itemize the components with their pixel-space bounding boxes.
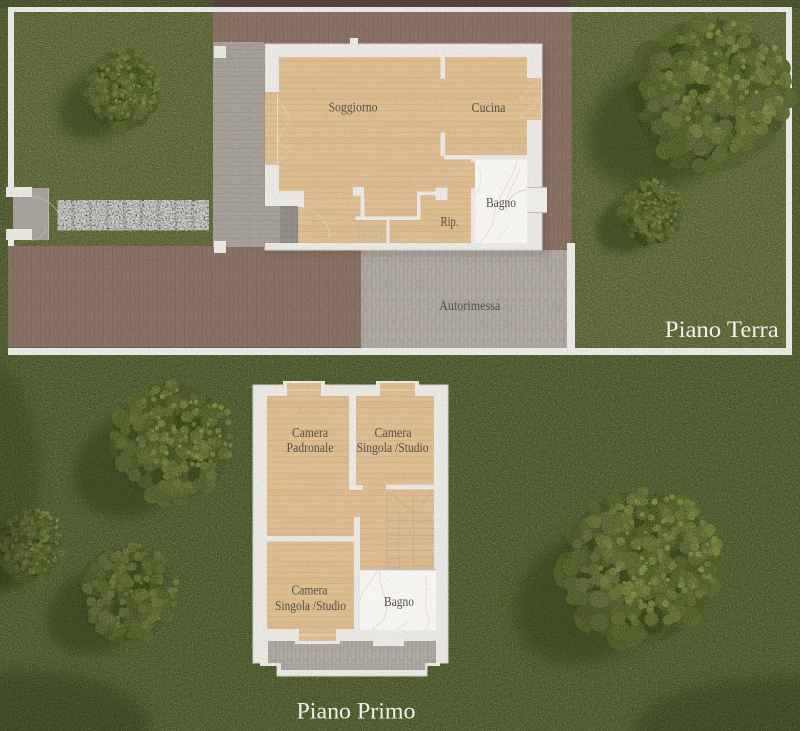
svg-text:Camera: Camera (292, 584, 329, 599)
svg-text:Cucina: Cucina (472, 101, 507, 116)
svg-text:Autorimessa: Autorimessa (439, 299, 501, 314)
svg-text:Singola /Studio: Singola /Studio (275, 599, 346, 614)
svg-text:Padronale: Padronale (287, 441, 334, 456)
svg-text:Rip.: Rip. (441, 215, 459, 230)
svg-text:Camera: Camera (292, 426, 329, 441)
svg-text:Singola /Studio: Singola /Studio (357, 441, 429, 456)
svg-text:Bagno: Bagno (384, 595, 414, 610)
svg-text:Camera: Camera (375, 426, 413, 441)
svg-text:Soggiorno: Soggiorno (329, 101, 378, 116)
svg-text:Piano Terra: Piano Terra (665, 317, 779, 342)
svg-text:Piano Primo: Piano Primo (297, 699, 416, 724)
svg-text:Bagno: Bagno (486, 196, 516, 211)
